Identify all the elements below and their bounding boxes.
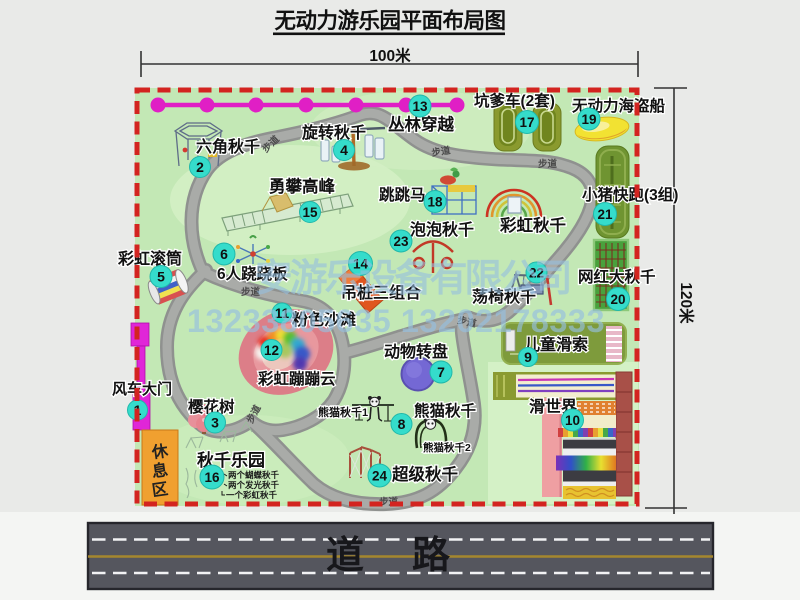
svg-text:勇攀高峰: 勇攀高峰: [269, 176, 336, 196]
svg-text:息: 息: [151, 460, 170, 481]
svg-text:熊猫秋千: 熊猫秋千: [414, 401, 477, 420]
svg-text:5: 5: [157, 269, 165, 285]
svg-text:24: 24: [372, 468, 388, 483]
svg-text:路: 路: [412, 535, 451, 577]
svg-text:动物转盘: 动物转盘: [384, 342, 448, 361]
svg-text:两个蝴蝶秋千: 两个蝴蝶秋千: [228, 470, 280, 480]
svg-text:熊猫秋千1: 熊猫秋千1: [318, 405, 368, 419]
svg-text:跳跳马: 跳跳马: [379, 185, 426, 204]
svg-text:风车大门: 风车大门: [112, 380, 172, 398]
svg-text:熊猫秋千2: 熊猫秋千2: [423, 441, 471, 454]
svg-text:彩虹蹦蹦云: 彩虹蹦蹦云: [257, 369, 336, 388]
svg-text:13: 13: [412, 99, 428, 114]
svg-text:坑爹车(2套): 坑爹车(2套): [474, 91, 555, 110]
svg-text:100米: 100米: [369, 46, 411, 65]
svg-text:10: 10: [565, 413, 580, 428]
svg-text:16: 16: [204, 470, 220, 485]
svg-text:无动力游乐园平面布局图: 无动力游乐园平面布局图: [274, 8, 505, 33]
svg-text:步道: 步道: [538, 158, 558, 170]
svg-text:2: 2: [196, 159, 204, 175]
svg-text:超级秋千: 超级秋千: [392, 464, 458, 484]
svg-text:3: 3: [211, 415, 219, 431]
svg-text:道: 道: [326, 535, 364, 577]
svg-text:4: 4: [340, 142, 348, 158]
svg-text:6: 6: [220, 246, 228, 262]
svg-text:9: 9: [524, 349, 532, 365]
svg-text:21: 21: [597, 207, 613, 222]
svg-text:8: 8: [398, 416, 406, 432]
svg-text:网红大秋千: 网红大秋千: [578, 267, 656, 286]
svg-text:7: 7: [437, 364, 445, 380]
svg-text:彩虹滚筒: 彩虹滚筒: [117, 249, 182, 268]
svg-text:区: 区: [151, 480, 169, 500]
svg-text:19: 19: [581, 112, 596, 127]
svg-text:17: 17: [519, 115, 534, 130]
svg-text:15: 15: [302, 205, 318, 220]
svg-text:彩虹秋千: 彩虹秋千: [499, 215, 566, 235]
svg-text:18: 18: [427, 194, 443, 209]
svg-text:13233805635 13202178333: 13233805635 13202178333: [187, 303, 605, 339]
svg-text:两个发光秋千: 两个发光秋千: [228, 480, 280, 490]
svg-text:12: 12: [264, 343, 279, 358]
svg-text:120米: 120米: [677, 282, 696, 324]
svg-text:23: 23: [393, 234, 409, 249]
svg-text:一个彩虹秋千: 一个彩虹秋千: [226, 490, 278, 500]
svg-text:六角秋千: 六角秋千: [196, 137, 260, 156]
svg-text:旋转秋千: 旋转秋千: [301, 123, 366, 142]
svg-text:安游乐设备有限公司: 安游乐设备有限公司: [254, 258, 569, 300]
svg-text:20: 20: [610, 292, 625, 307]
svg-text:小猪快跑(3组): 小猪快跑(3组): [582, 185, 678, 204]
svg-text:泡泡秋千: 泡泡秋千: [410, 220, 474, 239]
